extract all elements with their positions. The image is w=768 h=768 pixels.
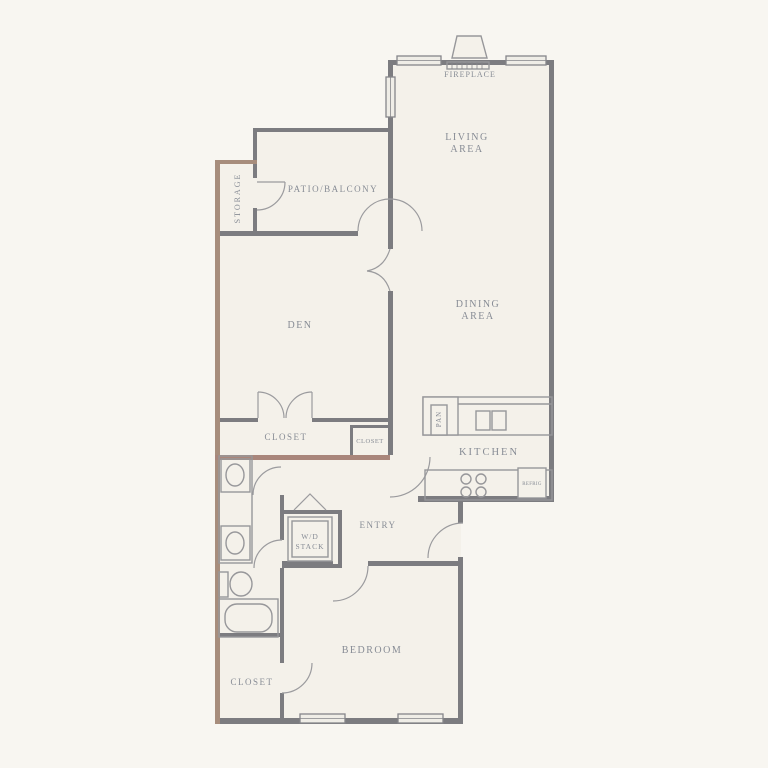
label-refrigerator: REFRIG [522,482,542,487]
wall-segment [215,418,258,422]
wall-segment [280,693,284,724]
window [397,56,441,65]
label-dining-area-1: DINING [456,299,501,310]
wall-segment [338,510,342,568]
label-closet-hall-small: CLOSET [356,438,384,445]
label-pantry: PAN [435,411,443,427]
wall-segment [312,418,390,422]
label-den: DEN [287,320,312,331]
wall-segment [458,557,463,724]
label-fireplace: FIREPLACE [444,70,496,79]
window [398,714,443,723]
window [506,56,546,65]
label-closet-hall: CLOSET [264,432,307,442]
floor-area [217,62,552,722]
label-dining-area-2: AREA [461,311,494,322]
window [386,77,395,117]
wall-segment [388,237,393,249]
wall-segment [253,208,257,235]
window [300,714,345,723]
label-living-area-1: LIVING [445,132,488,143]
wall-segment [253,128,257,178]
label-storage: STORAGE [233,173,242,224]
label-wd-stack-1: W/D [301,532,319,541]
label-wd-stack-2: STACK [296,542,325,551]
label-bedroom: BEDROOM [342,645,403,656]
wall-segment [282,510,342,514]
wall-segment [215,231,358,236]
wall-segment [215,160,257,164]
label-closet-bedroom: CLOSET [230,677,273,687]
wall-segment [350,425,353,455]
floor-plan: LIVING AREA FIREPLACE PATIO/BALCONY STOR… [0,0,768,768]
wall-segment [253,128,390,132]
wall-segment [282,564,342,568]
label-entry: ENTRY [359,520,396,530]
wall-segment [388,291,393,455]
wall-segment [368,561,460,566]
label-living-area-2: AREA [450,144,483,155]
label-kitchen: KITCHEN [459,447,519,458]
wall-segment [280,568,284,663]
wall-segment [215,160,220,724]
wall-segment [350,425,390,428]
floor-plan-drawing: LIVING AREA FIREPLACE PATIO/BALCONY STOR… [0,0,768,768]
wall-segment [280,495,284,540]
label-patio-balcony: PATIO/BALCONY [288,184,378,194]
